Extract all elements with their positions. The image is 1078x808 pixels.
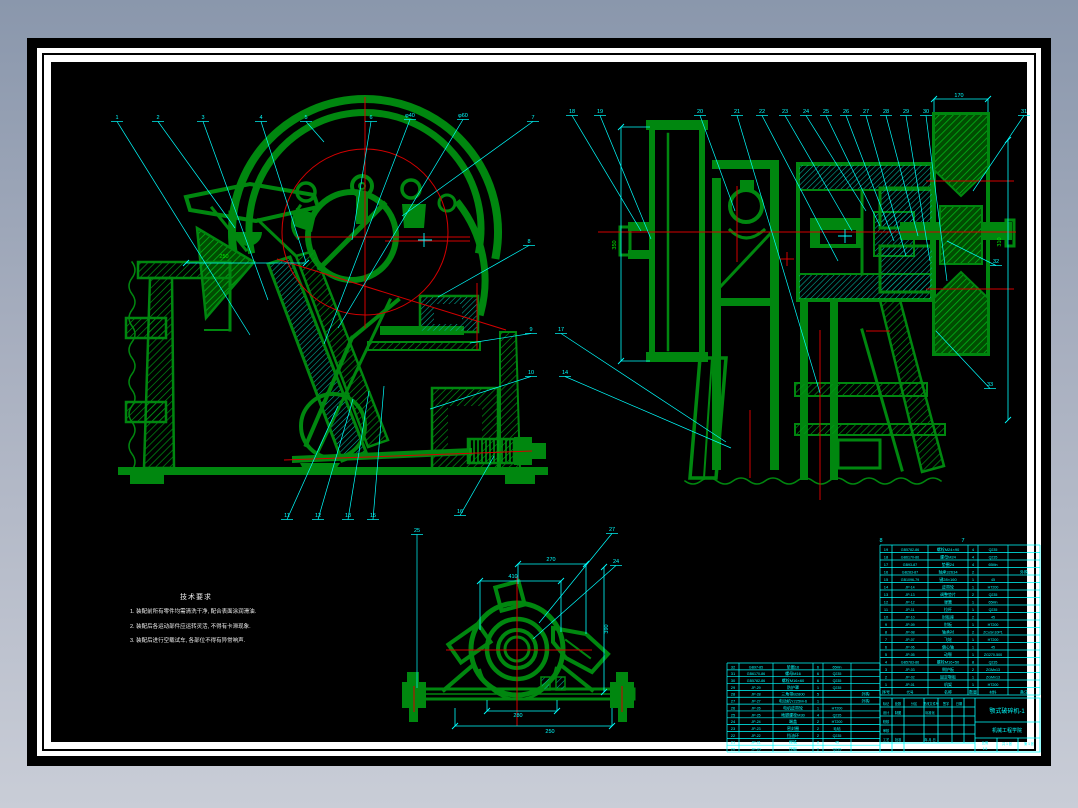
table-cell: 28 — [731, 692, 736, 697]
table-cell: 序号 — [882, 688, 890, 694]
table-cell: JP-08 — [905, 630, 914, 634]
table-cell: 肘板 — [944, 621, 952, 627]
table-cell: JP-27 — [751, 700, 760, 704]
notes-lines: 1. 装配前所有零件均需清洗干净, 配合表面涂润滑油.2. 装配后各运动部件应运… — [130, 605, 430, 649]
table-cell: 1 — [972, 674, 975, 679]
table-cell: 6 — [817, 671, 820, 676]
table-cell: 8 — [972, 659, 975, 664]
technical-notes: 技术要求 1. 装配前所有零件均需清洗干净, 配合表面涂润滑油.2. 装配后各运… — [130, 592, 430, 649]
table-cell: 6 — [817, 664, 820, 669]
table-cell: 17 — [884, 562, 889, 567]
table-cell: 飞轮 — [944, 636, 952, 642]
table-cell: 外购 — [1020, 568, 1028, 574]
table-cell: JP-01 — [905, 683, 914, 687]
table-cell: 外购 — [862, 698, 870, 704]
table-cell: 45 — [991, 645, 995, 649]
callout-label: 12 — [315, 513, 321, 519]
table-cell: 垫圈24 — [942, 561, 955, 567]
table-cell: 轴承32634 — [938, 568, 958, 574]
table-cell: 7 — [885, 637, 888, 642]
table-cell: 1 — [972, 622, 975, 627]
title-block-cell: 1:5 — [983, 747, 988, 751]
callout-label: 28 — [883, 109, 889, 115]
table-cell: 压板 — [789, 746, 797, 752]
table-cell: 2 — [817, 719, 820, 724]
table-cell: 5 — [817, 692, 820, 697]
table-cell: JP-28 — [751, 693, 760, 697]
table-cell: 1 — [972, 599, 975, 604]
table-cell: GB97-85 — [749, 665, 763, 669]
title-block-cell: 比例 — [982, 740, 988, 745]
callout-label: 30 — [923, 109, 929, 115]
table-cell: 三角带B2800 — [781, 691, 805, 697]
callout-label: 14 — [562, 370, 568, 376]
table-cell: ZCuSn10P1 — [983, 630, 1003, 634]
callout-label: 25 — [823, 109, 829, 115]
table-cell: Q235 — [989, 660, 998, 664]
table-cell: 2 — [972, 614, 975, 619]
table-cell: 2 — [972, 667, 975, 672]
table-cell: 18 — [884, 554, 889, 559]
table-cell: JP-20 — [751, 748, 760, 752]
table-cell: 楔铁 — [789, 739, 797, 745]
table-cell: 20 — [731, 747, 736, 752]
callout-label: 1 — [115, 115, 118, 121]
callout-label: 8 — [527, 239, 530, 245]
title-block-cell: 制图 — [895, 710, 901, 715]
table-cell: ZGMn13 — [986, 668, 1000, 672]
callout-label: 18 — [569, 109, 575, 115]
table-cell: JP-13 — [905, 593, 914, 597]
callout-label: 32 — [993, 259, 999, 265]
table-cell: 8 — [885, 629, 888, 634]
table-cell: Q235 — [833, 713, 842, 717]
table-cell: 偏心轴 — [942, 643, 954, 649]
table-cell: 螺母M24 — [940, 553, 957, 559]
table-cell: Q235 — [833, 748, 842, 752]
table-cell: JP-21 — [751, 741, 760, 745]
callout-label: 13 — [345, 513, 351, 519]
table-cell: Q235 — [833, 679, 842, 683]
title-block-cell: 审核 — [883, 728, 890, 733]
title-block-cell: 签字 — [943, 701, 949, 706]
table-cell: 1 — [817, 685, 820, 690]
callout-label: 7 — [531, 115, 534, 121]
table-cell: 1 — [972, 644, 975, 649]
callout-label: 3 — [201, 115, 204, 121]
callout-label: 27 — [609, 527, 615, 533]
leader-line — [539, 534, 612, 624]
note-line: 1. 装配前所有零件均需清洗干净, 配合表面涂润滑油. — [130, 605, 430, 620]
table-cell: HT200 — [988, 623, 999, 627]
table-cell: 螺栓M24×90 — [937, 546, 960, 552]
callout-label: 5 — [304, 115, 307, 121]
table-cell: JP-02 — [905, 675, 914, 679]
callout-label: 25 — [414, 528, 420, 534]
table-cell: 5 — [885, 652, 888, 657]
title-block-cell: 批准 — [895, 737, 902, 742]
table-cell: 23 — [731, 726, 736, 731]
table-cell: Q235 — [833, 686, 842, 690]
table-cell: 10 — [884, 614, 889, 619]
table-cell: Q235 — [833, 672, 842, 676]
table-cell: 4 — [972, 562, 975, 567]
title-block-cell: 分区 — [911, 701, 918, 706]
table-cell: 1 — [817, 699, 820, 704]
table-cell: 电动机Y225M-6 — [779, 698, 808, 704]
side-view — [620, 114, 1014, 484]
table-cell: JP-05 — [905, 653, 914, 657]
table-cell: 30 — [731, 678, 736, 683]
table-cell: 1 — [972, 584, 975, 589]
dim-label: 8 — [879, 538, 882, 544]
dim-label: 270 — [546, 557, 555, 563]
table-cell: JP-22 — [751, 734, 760, 738]
leader-line — [572, 116, 641, 232]
dim-label: 310 — [997, 237, 1003, 246]
table-cell: 1 — [972, 637, 975, 642]
title-block-cell: 共 1 张 — [1002, 741, 1013, 746]
leader-line — [565, 377, 731, 449]
table-cell: 2 — [972, 592, 975, 597]
callout-label: 11 — [284, 513, 290, 519]
table-cell: 13 — [884, 592, 889, 597]
table-cell: HT200 — [988, 585, 999, 589]
table-cell: 2 — [817, 747, 820, 752]
table-cell: 弹簧 — [944, 598, 952, 604]
table-cell: 1 — [972, 577, 975, 582]
callout-label: 24 — [613, 559, 619, 565]
table-cell: 19 — [884, 547, 889, 552]
organization-name: 机械工程学院 — [992, 727, 1022, 734]
table-cell: 12 — [884, 599, 889, 604]
callout-label: φ40 — [405, 113, 415, 119]
table-cell: 4 — [972, 554, 975, 559]
table-cell: ZG270-500 — [984, 653, 1002, 657]
table-cell: 26 — [731, 705, 736, 710]
table-cell: 21 — [731, 740, 736, 745]
title-block-cell: 处数 — [895, 701, 902, 706]
table-cell: 31 — [731, 671, 736, 676]
table-cell: 2 — [972, 629, 975, 634]
table-cell: 密封圈 — [787, 725, 799, 731]
table-cell: 代号 — [906, 689, 914, 694]
table-cell: 4 — [817, 712, 820, 717]
callout-label: 17 — [558, 327, 564, 333]
table-cell: HT200 — [832, 706, 843, 710]
title-block-cell: 工艺 — [883, 737, 889, 742]
title-block-cell: 标记 — [883, 701, 890, 706]
dim-label: 250 — [545, 729, 554, 735]
table-cell: 1 — [885, 682, 888, 687]
table-cell: 65Mn — [833, 665, 842, 669]
drawing-title: 颚式破碎机-1 — [989, 707, 1025, 715]
notes-title: 技术要求 — [180, 592, 430, 602]
table-cell: 1 — [817, 705, 820, 710]
desktop-background: 123456φ40φ607891017141112131516181920212… — [0, 0, 1078, 808]
table-cell: 1 — [972, 607, 975, 612]
table-cell: 侧护板 — [942, 666, 954, 672]
table-cell: 端盖 — [789, 718, 797, 724]
table-cell: JP-03 — [905, 668, 914, 672]
callout-label: 31 — [1021, 109, 1027, 115]
table-cell: 11 — [884, 607, 889, 612]
callout-label: 15 — [370, 513, 376, 519]
table-cell: GB93-87 — [903, 563, 917, 567]
table-cell: 2 — [817, 740, 820, 745]
title-block-cell: 日期 — [956, 701, 962, 706]
callout-label: 4 — [259, 115, 262, 121]
table-cell: JP-14 — [905, 585, 914, 589]
table-cell: 14 — [884, 584, 889, 589]
dim-label: 170 — [954, 93, 963, 99]
table-cell: 轴承衬 — [942, 628, 954, 634]
table-cell: GB1096-79 — [901, 578, 919, 582]
table-cell: JP-26 — [751, 706, 760, 710]
callout-label: 6 — [369, 115, 372, 121]
table-cell: 65Mn — [989, 563, 998, 567]
table-cell: JP-24 — [751, 720, 760, 724]
callout-label: 2 — [156, 115, 159, 121]
table-cell: 2 — [817, 733, 820, 738]
table-cell: GB5782-86 — [901, 548, 919, 552]
table-cell: 材料 — [989, 689, 997, 694]
table-cell: JP-10 — [905, 615, 914, 619]
table-cell: 16 — [884, 569, 889, 574]
callout-label: 19 — [597, 109, 603, 115]
front-view — [118, 99, 548, 484]
table-cell: 电机皮带轮 — [783, 704, 803, 710]
title-block-cell: 更改文件号 — [923, 701, 939, 706]
title-block-cell: 校核 — [883, 719, 890, 724]
table-cell: 螺栓M16×50 — [937, 658, 960, 664]
table-cell: 数量 — [969, 688, 977, 694]
table-cell: 3 — [885, 667, 888, 672]
table-cell: 9 — [885, 622, 888, 627]
table-cell: 45 — [991, 615, 995, 619]
table-cell: 1 — [972, 652, 975, 657]
table-cell: 螺栓M16×60 — [782, 677, 805, 683]
callout-label: 22 — [759, 109, 765, 115]
table-cell: 24 — [731, 719, 736, 724]
table-cell: 固定颚板 — [940, 673, 956, 679]
table-cell: JP-07 — [905, 638, 914, 642]
table-cell: 6 — [885, 644, 888, 649]
table-cell: Q235 — [989, 608, 998, 612]
table-cell: JP-25 — [751, 713, 760, 717]
table-cell: 名称 — [944, 688, 952, 694]
table-cell: 27 — [731, 699, 736, 704]
callout-label: 16 — [457, 509, 463, 515]
dim-label: 350 — [612, 240, 618, 249]
table-cell: JP-29 — [751, 686, 760, 690]
callout-label: 29 — [903, 109, 909, 115]
note-line: 2. 装配后各运动部件应运转灵活, 不得有卡滞现象. — [130, 620, 430, 635]
table-cell: GB6170-86 — [901, 555, 919, 559]
table-cell: 4 — [972, 547, 975, 552]
table-cell: 外购 — [862, 691, 870, 697]
table-cell: 地脚螺栓M30 — [781, 711, 806, 717]
note-line: 3. 装配后进行空载试车, 各部位不得有异常响声. — [130, 634, 430, 649]
table-cell: 挡油环 — [787, 732, 799, 738]
table-cell: 1 — [972, 682, 975, 687]
cad-drawing-canvas[interactable]: 123456φ40φ607891017141112131516181920212… — [0, 0, 1078, 808]
callout-label: 33 — [987, 382, 993, 388]
leader-line — [600, 116, 651, 240]
callout-label: 21 — [734, 109, 740, 115]
table-cell: 2 — [885, 674, 888, 679]
table-cell: HT200 — [832, 720, 843, 724]
table-cell: JP-23 — [751, 727, 760, 731]
table-cell: 2 — [817, 726, 820, 731]
callout-label: 26 — [843, 109, 849, 115]
table-cell: 拉杆 — [944, 606, 952, 612]
dim-label: 410 — [508, 574, 517, 580]
table-cell: JP-09 — [905, 623, 914, 627]
callout-label: 20 — [697, 109, 703, 115]
table-cell: JP-12 — [905, 600, 914, 604]
callout-label: 9 — [529, 327, 532, 333]
table-cell: 32 — [731, 664, 736, 669]
title-block-cell: 标准化 — [925, 710, 935, 715]
callout-label: 24 — [803, 109, 809, 115]
title-block-cell: 第 1 张 — [1024, 741, 1035, 746]
table-cell: HT200 — [988, 683, 999, 687]
table-cell: Q235 — [989, 548, 998, 552]
table-cell: 65Mn — [989, 600, 998, 604]
callout-label: 23 — [782, 109, 788, 115]
table-cell: Q235 — [989, 555, 998, 559]
table-cell: JP-11 — [905, 608, 914, 612]
table-cell: GB6170-86 — [747, 672, 765, 676]
table-cell: 6 — [817, 678, 820, 683]
table-cell: 4 — [885, 659, 888, 664]
table-cell: ZGMn13 — [986, 675, 1000, 679]
table-cell: 键28×160 — [939, 576, 957, 582]
end-view — [402, 581, 634, 722]
title-block-cell: 年.月.日 — [924, 737, 935, 742]
table-cell: 2 — [972, 569, 975, 574]
table-cell: 动颚 — [944, 651, 952, 657]
table-cell: 防护罩 — [787, 684, 799, 690]
table-cell: 25 — [731, 712, 736, 717]
table-cell: 毛毡 — [833, 726, 841, 731]
table-cell: Q235 — [833, 734, 842, 738]
table-cell: JP-06 — [905, 645, 914, 649]
table-cell: 45 — [835, 741, 839, 745]
table-cell: 备注 — [1020, 688, 1028, 694]
table-cell: 29 — [731, 685, 736, 690]
table-cell: HT200 — [988, 638, 999, 642]
table-cell: GB5782-86 — [747, 679, 765, 683]
table-cell: 45 — [991, 578, 995, 582]
table-cell: GB5783-86 — [901, 660, 919, 664]
table-cell: 垫圈16 — [787, 663, 800, 669]
leader-line — [402, 122, 533, 217]
table-cell: Q235 — [989, 593, 998, 597]
table-cell: 15 — [884, 577, 889, 582]
table-cell: 机架 — [944, 681, 952, 687]
table-cell: 22 — [731, 733, 736, 738]
dim-label: 390 — [604, 624, 610, 633]
table-cell: GB283-87 — [902, 570, 918, 574]
callout-label: 10 — [528, 370, 534, 376]
dim-label: 250 — [219, 254, 228, 260]
table-cell: 皮带轮 — [942, 583, 954, 589]
table-cell: 肘板座 — [942, 613, 954, 619]
callout-label: 27 — [863, 109, 869, 115]
table-cell: 调整垫片 — [940, 591, 956, 597]
table-cell: 螺母M16 — [785, 670, 802, 676]
title-block-cell: 设计 — [883, 710, 890, 715]
dim-label: 280 — [513, 713, 522, 719]
callout-label: φ60 — [458, 113, 468, 119]
dim-label: 7 — [961, 538, 964, 544]
title-block-grid — [880, 698, 1040, 752]
